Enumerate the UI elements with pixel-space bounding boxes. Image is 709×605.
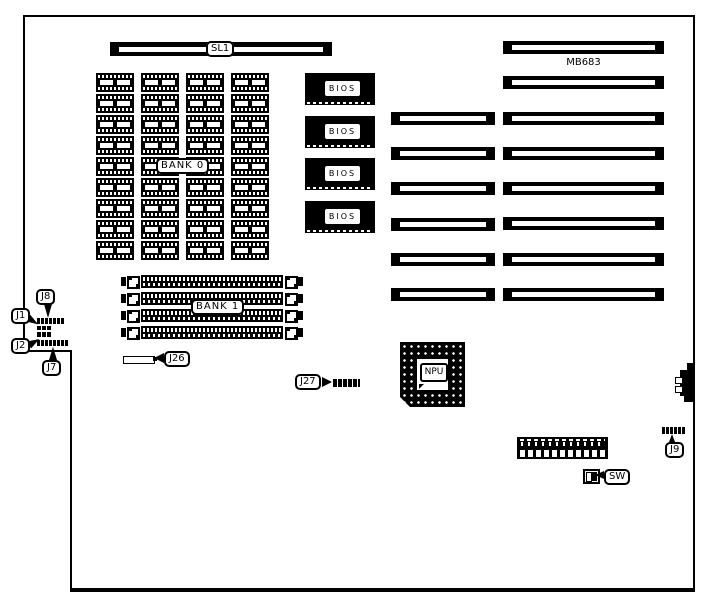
simm-tab-right <box>298 294 303 303</box>
isa-slot-long <box>503 288 664 301</box>
switch-label: SW <box>604 469 630 485</box>
dram-chip <box>186 220 224 239</box>
simm-pin-strip <box>141 275 283 288</box>
board-edge-top <box>23 15 695 17</box>
dram-chip <box>231 199 269 218</box>
bank1-label: BANK 1 <box>191 299 244 315</box>
isa-slot-long <box>503 41 664 54</box>
isa-slot-short <box>391 288 495 301</box>
j7-pointer <box>49 347 57 360</box>
j8-pointer <box>44 304 52 318</box>
board-edge-left-upper <box>23 15 25 352</box>
j9-pointer <box>669 434 675 442</box>
simm-latch-right <box>285 276 298 289</box>
npu-socket-center: NPU <box>417 359 448 390</box>
npu-pin1-arrow <box>419 384 424 389</box>
dram-chip <box>231 136 269 155</box>
dram-chip <box>186 73 224 92</box>
simm-tab-left <box>121 294 126 303</box>
simm-latch-right <box>285 327 298 340</box>
connector-j9-pins <box>662 427 685 434</box>
simm-pin-strip <box>141 326 283 339</box>
simm-latch-left <box>127 327 140 340</box>
keyboard-connector-step-bottom <box>684 396 695 402</box>
dram-chip <box>141 73 179 92</box>
bios-chip-label: BIOS <box>325 81 360 96</box>
simm-tab-left <box>121 328 126 337</box>
dram-chip <box>231 241 269 260</box>
dram-chip <box>231 73 269 92</box>
dram-chip <box>186 199 224 218</box>
dram-chip <box>141 94 179 113</box>
isa-slot-long <box>503 217 664 230</box>
dram-chip <box>231 157 269 176</box>
simm-tab-left <box>121 311 126 320</box>
keyboard-connector-notch-1 <box>675 377 683 384</box>
dram-chip <box>141 178 179 197</box>
isa-long-slot-column <box>503 41 664 301</box>
bios-chip: BIOS <box>305 73 375 105</box>
slot-sl1-label: SL1 <box>206 41 234 57</box>
bios-chip-label: BIOS <box>325 166 360 181</box>
isa-slot-long <box>503 182 664 195</box>
jumper-j26-label: J26 <box>164 351 190 367</box>
isa-slot-short <box>391 182 495 195</box>
connector-j1-pins <box>37 326 51 337</box>
dram-chip <box>231 220 269 239</box>
jumper-j9-label: J9 <box>665 442 684 458</box>
isa-short-slot-column <box>391 112 495 301</box>
dram-chip <box>96 220 134 239</box>
dram-chip <box>141 220 179 239</box>
power-connector-pins <box>517 437 608 447</box>
npu-socket: NPU <box>400 342 465 407</box>
isa-slot-long <box>503 76 664 89</box>
bios-chip: BIOS <box>305 116 375 148</box>
board-edge-right <box>693 15 695 592</box>
dram-chip <box>96 199 134 218</box>
isa-slot-short <box>391 218 495 231</box>
dram-chip <box>96 136 134 155</box>
motherboard-diagram: SL1 BANK 0 BIOS BIOS BIOS BIOS MB683 <box>0 0 709 605</box>
j26-pointer <box>154 353 164 363</box>
npu-label: NPU <box>420 363 448 382</box>
board-edge-bottom <box>70 588 695 592</box>
jumper-j27-label: J27 <box>295 374 321 390</box>
dram-chip <box>231 115 269 134</box>
isa-slot-long <box>503 147 664 160</box>
jumper-j7-label: J7 <box>42 360 61 376</box>
dram-chip <box>141 136 179 155</box>
connector-j27-pins <box>333 379 360 387</box>
simm-tab-right <box>298 328 303 337</box>
dram-chip <box>231 178 269 197</box>
dram-chip <box>141 241 179 260</box>
simm-latch-right <box>285 310 298 323</box>
jumper-j2-label: J2 <box>11 338 30 354</box>
j27-pointer <box>322 377 332 387</box>
isa-slot-short <box>391 112 495 125</box>
bios-chip-column: BIOS BIOS BIOS BIOS <box>305 73 375 233</box>
dram-chip <box>96 115 134 134</box>
simm-socket <box>121 326 303 339</box>
dram-chip <box>186 115 224 134</box>
isa-slot-short <box>391 147 495 160</box>
dram-chip <box>96 241 134 260</box>
bios-chip: BIOS <box>305 158 375 190</box>
connector-j26-header <box>123 356 155 364</box>
dram-chip <box>186 136 224 155</box>
connector-j8-pins <box>37 318 65 324</box>
isa-slot-short <box>391 253 495 266</box>
dram-chip <box>96 178 134 197</box>
dram-chip <box>231 94 269 113</box>
simm-latch-left <box>127 310 140 323</box>
power-connector-socket <box>517 447 608 459</box>
bios-chip: BIOS <box>305 201 375 233</box>
dram-chip <box>96 73 134 92</box>
dram-chip <box>96 157 134 176</box>
sw-pointer <box>595 471 604 479</box>
simm-latch-right <box>285 293 298 306</box>
board-edge-notch <box>23 350 72 352</box>
board-edge-left-lower <box>70 350 72 590</box>
simm-tab-left <box>121 277 126 286</box>
board-model-text: MB683 <box>503 57 664 68</box>
isa-slot-long <box>503 253 664 266</box>
bios-chip-label: BIOS <box>325 209 360 224</box>
keyboard-connector-notch-2 <box>675 386 683 393</box>
jumper-j1-label: J1 <box>11 308 30 324</box>
simm-tab-right <box>298 311 303 320</box>
simm-latch-left <box>127 293 140 306</box>
bios-chip-label: BIOS <box>325 124 360 139</box>
simm-socket <box>121 275 303 288</box>
simm-tab-right <box>298 277 303 286</box>
dram-chip <box>186 178 224 197</box>
dram-chip <box>186 94 224 113</box>
isa-slot-long <box>503 112 664 125</box>
connector-j2-pins <box>37 340 69 346</box>
jumper-j8-label: J8 <box>36 289 55 305</box>
dram-chip <box>186 241 224 260</box>
bank0-label: BANK 0 <box>156 158 209 174</box>
dram-chip <box>141 199 179 218</box>
simm-latch-left <box>127 276 140 289</box>
dram-chip <box>141 115 179 134</box>
dram-chip <box>96 94 134 113</box>
